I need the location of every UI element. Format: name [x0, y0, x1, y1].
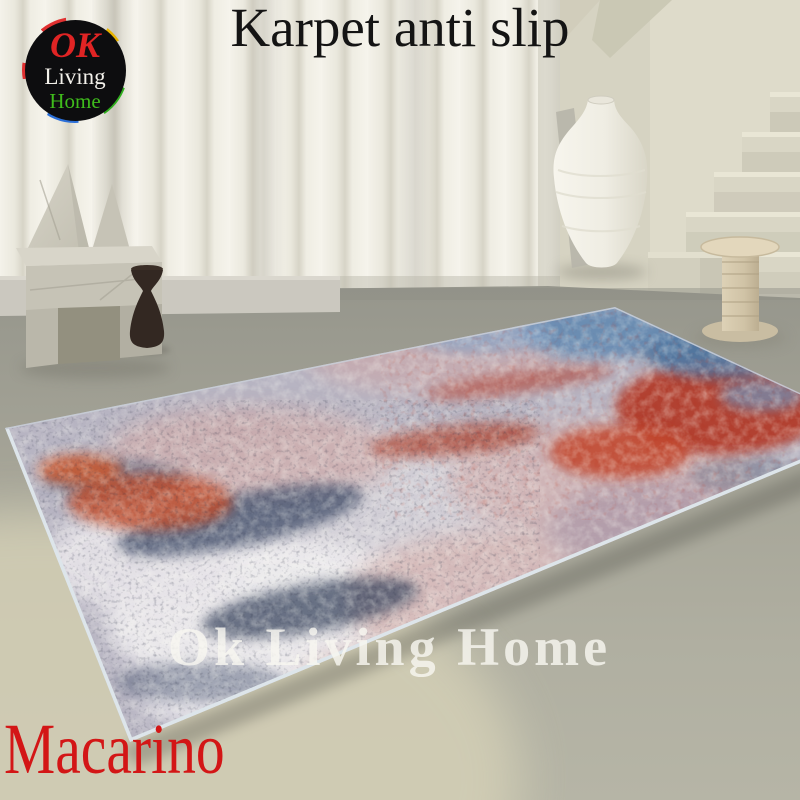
product-photo: Karpet anti slip OK Living Home Ok Livin…	[0, 0, 800, 800]
scene	[0, 0, 800, 800]
watermark-text: Ok Living Home	[168, 616, 611, 678]
logo-text-living: Living	[44, 65, 105, 88]
logo-text-ok: OK	[50, 27, 100, 63]
brand-name: Macarino	[4, 708, 225, 791]
logo-circle: OK Living Home	[25, 20, 126, 121]
logo-text-home: Home	[49, 91, 100, 112]
brand-logo: OK Living Home	[22, 17, 128, 123]
